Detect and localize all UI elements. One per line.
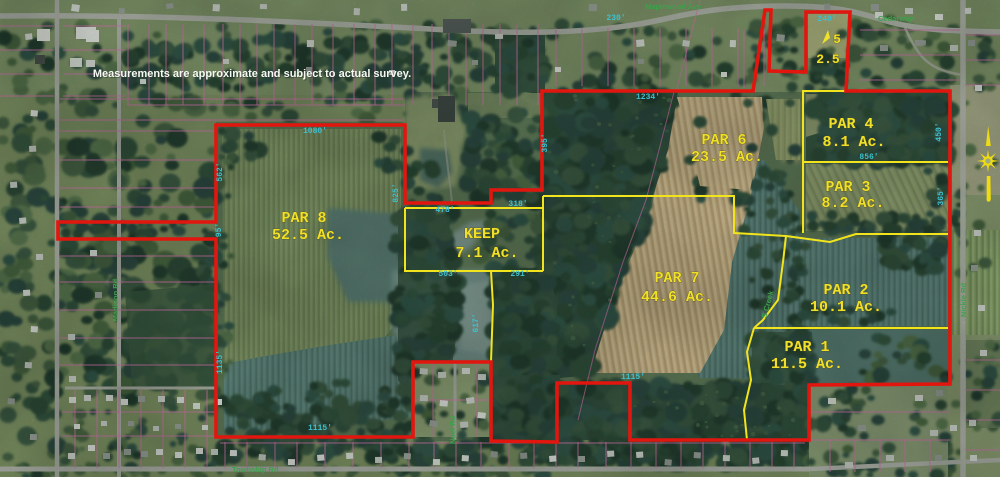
- svg-text:503': 503': [438, 270, 457, 279]
- svg-text:23.5 Ac.: 23.5 Ac.: [691, 149, 763, 166]
- svg-text:450': 450': [935, 122, 944, 141]
- svg-text:8.2 Ac.: 8.2 Ac.: [821, 195, 884, 212]
- svg-text:318': 318': [508, 200, 527, 209]
- svg-text:230': 230': [606, 14, 625, 23]
- svg-text:478': 478': [435, 206, 454, 215]
- svg-text:44.6 Ac.: 44.6 Ac.: [641, 289, 713, 306]
- svg-text:1234': 1234': [636, 93, 660, 102]
- svg-text:KEEP: KEEP: [464, 226, 500, 243]
- svg-text:PAR 6: PAR 6: [701, 132, 746, 149]
- svg-text:PAR 1: PAR 1: [784, 339, 829, 356]
- svg-text:Township Rd: Township Rd: [232, 465, 279, 474]
- svg-text:Measurements are approximate a: Measurements are approximate and subject…: [93, 68, 411, 80]
- svg-text:Maplewood Ave: Maplewood Ave: [645, 2, 701, 11]
- svg-text:5: 5: [833, 32, 841, 47]
- svg-text:10.1 Ac.: 10.1 Ac.: [810, 299, 882, 316]
- svg-text:95': 95': [215, 223, 224, 237]
- svg-text:395': 395': [541, 133, 550, 152]
- svg-text:1080': 1080': [303, 127, 327, 136]
- svg-text:562': 562': [216, 162, 225, 181]
- svg-text:7.1 Ac.: 7.1 Ac.: [455, 245, 518, 262]
- svg-text:PAR 3: PAR 3: [825, 179, 870, 196]
- svg-text:11.5 Ac.: 11.5 Ac.: [771, 356, 843, 373]
- svg-text:240': 240': [817, 15, 836, 24]
- svg-text:Nickle Rd: Nickle Rd: [959, 282, 968, 317]
- svg-text:1115': 1115': [621, 373, 645, 382]
- svg-text:617': 617': [472, 313, 481, 332]
- svg-text:PAR 8: PAR 8: [281, 210, 326, 227]
- svg-text:365': 365': [937, 186, 946, 205]
- svg-text:825': 825': [392, 183, 401, 202]
- svg-text:Cedarway: Cedarway: [878, 14, 914, 23]
- svg-text:PAR 2: PAR 2: [823, 282, 868, 299]
- svg-text:856': 856': [859, 153, 878, 162]
- svg-text:8.1 Ac.: 8.1 Ac.: [822, 134, 885, 151]
- svg-text:291': 291': [510, 270, 529, 279]
- svg-text:2.5: 2.5: [816, 52, 840, 67]
- svg-text:52.5 Ac.: 52.5 Ac.: [272, 227, 344, 244]
- svg-text:Noel Rd: Noel Rd: [448, 415, 457, 444]
- svg-text:Madison Rd: Madison Rd: [111, 278, 120, 321]
- svg-text:PAR 4: PAR 4: [828, 116, 873, 133]
- svg-text:1135': 1135': [216, 350, 225, 374]
- svg-text:1115': 1115': [308, 424, 332, 433]
- svg-text:PAR 7: PAR 7: [654, 270, 699, 287]
